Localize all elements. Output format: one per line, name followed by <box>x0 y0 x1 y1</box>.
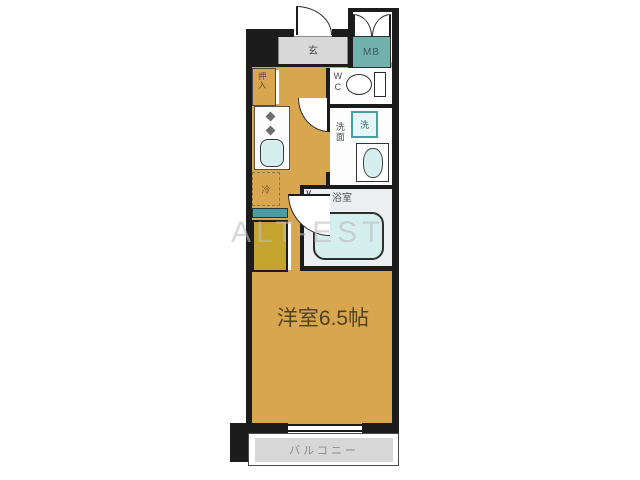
entrance-door-swing <box>296 6 332 35</box>
toilet-tank-icon <box>374 72 386 97</box>
washbasin-icon <box>356 143 389 182</box>
closet-door <box>276 70 279 104</box>
wall-top-left <box>248 29 294 37</box>
bathroom-label: 浴室 <box>332 193 352 204</box>
main-room-label: 洋室6.5帖 <box>256 302 390 332</box>
balcony-area: バルコニー <box>248 433 399 466</box>
washbasin-bowl-icon <box>363 148 383 178</box>
kitchen-sink-icon <box>260 139 284 167</box>
washing-machine-icon: 洗 <box>351 111 378 138</box>
wall-genkan-threshold <box>252 64 348 67</box>
washroom-area: 洗面 洗 <box>330 108 392 185</box>
balcony-slab: バルコニー <box>255 438 393 462</box>
burner-icon <box>266 126 276 136</box>
kitchen-counter <box>254 106 290 170</box>
fridge-label: 冷 <box>261 183 270 196</box>
wall-bath-bottom <box>300 266 392 271</box>
balcony-label: バルコニー <box>289 442 359 458</box>
genkan-label: 玄 <box>308 46 318 57</box>
fridge-space: 冷 <box>252 172 280 206</box>
toilet-icon <box>346 74 372 95</box>
wall-top-left-block <box>252 34 278 66</box>
floorplan-canvas: 玄 MB WC 洗面 洗 ∨ 浴室 押入 <box>0 0 640 480</box>
burner-icon <box>266 112 276 122</box>
watermark: ALT-EST <box>231 216 401 256</box>
genkan-area: 玄 <box>278 36 348 66</box>
closet-area: 押入 <box>252 68 276 106</box>
wall-top-mb <box>352 8 398 12</box>
meter-box-area: MB <box>352 36 391 68</box>
wc-room: WC <box>330 68 392 104</box>
meter-box-label: MB <box>363 47 380 58</box>
mb-door-right-swing <box>372 14 391 36</box>
mb-door-left-swing <box>353 14 372 36</box>
washer-label: 洗 <box>360 118 369 131</box>
window <box>288 424 362 432</box>
wall-bottom-right <box>362 423 392 433</box>
washroom-label: 洗面 <box>334 122 344 142</box>
closet-label: 押入 <box>257 72 266 90</box>
wc-label: WC <box>332 71 342 93</box>
